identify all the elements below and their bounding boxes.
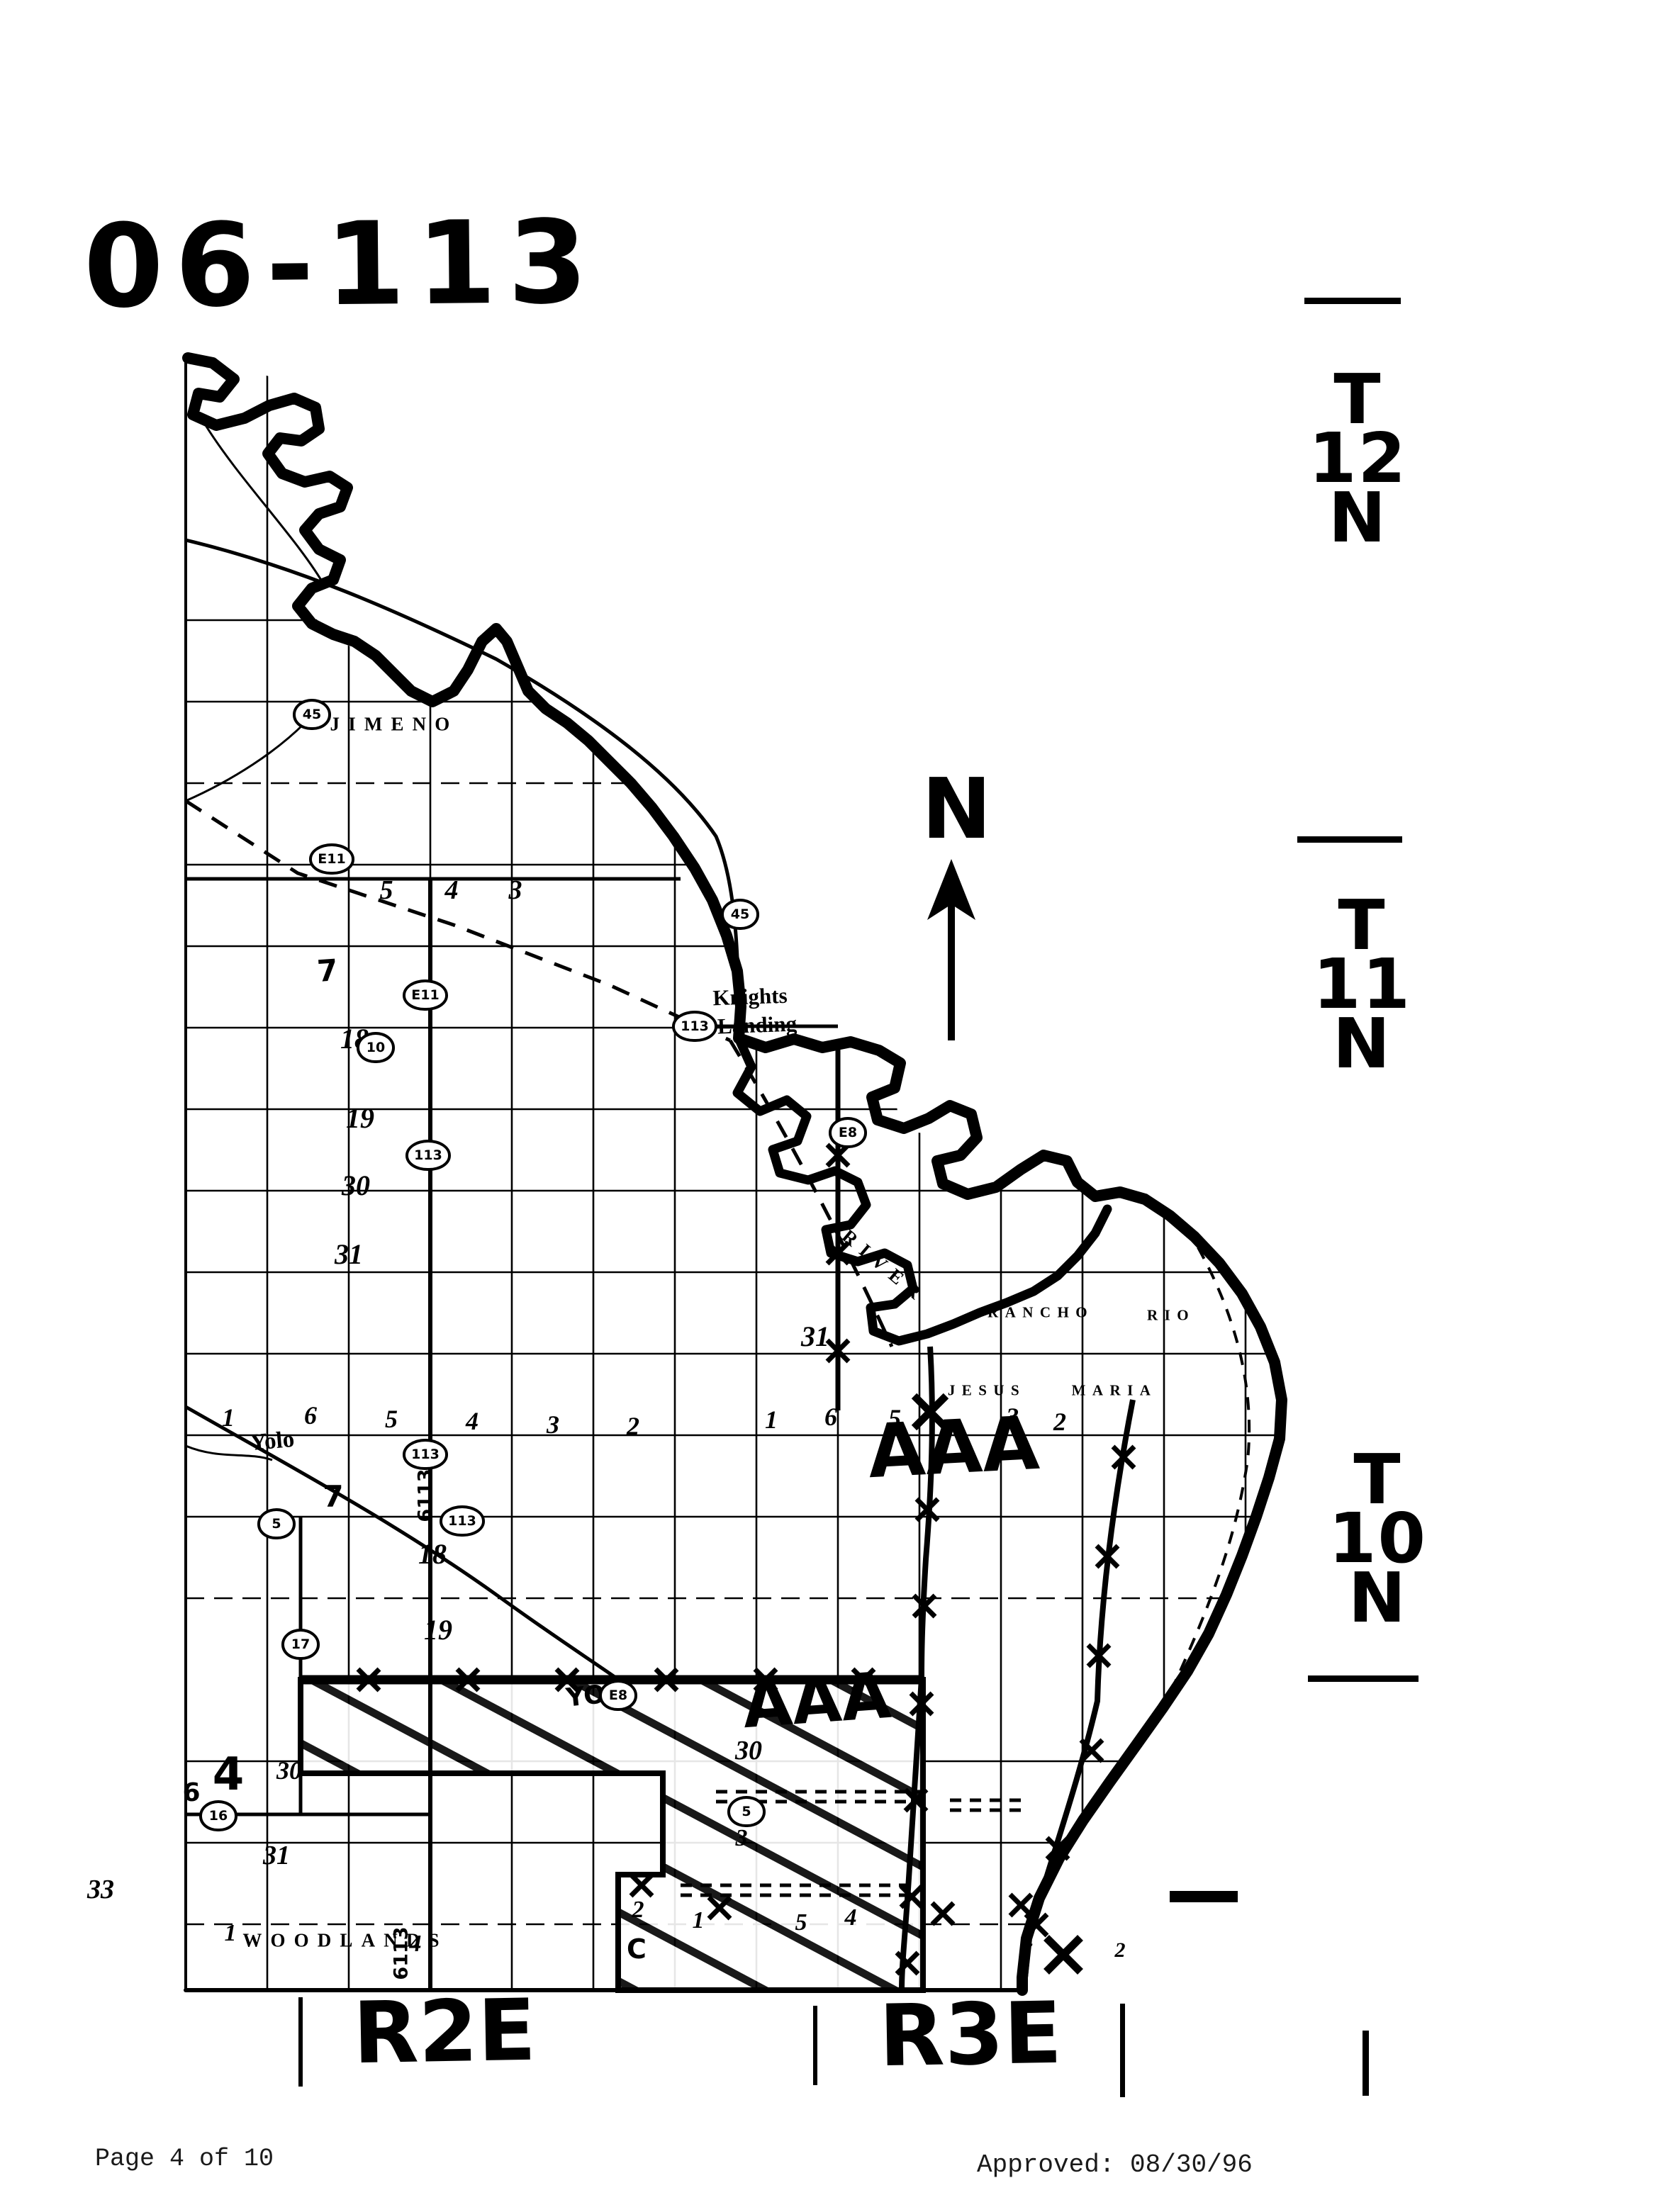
handwritten-annotation: AAA <box>866 1406 1041 1488</box>
section-number: 31 <box>263 1842 290 1869</box>
approved-footer: Approved: 08/30/96 <box>977 2150 1253 2179</box>
township-tick-bottom <box>1308 1675 1419 1682</box>
route-shield: 16 <box>199 1800 237 1831</box>
section-number: 33 <box>87 1876 114 1903</box>
place-name-label: MARIA <box>1072 1383 1158 1398</box>
section-number: 4 <box>466 1408 479 1434</box>
approved-date: 08/30/96 <box>1130 2150 1253 2179</box>
margin-dash-mark <box>1170 1891 1238 1902</box>
range-tick-left <box>298 1997 303 2087</box>
range-tick-right <box>1120 2004 1125 2097</box>
section-number: 3 <box>509 877 522 904</box>
section-number: 31 <box>335 1240 363 1269</box>
section-number: 1 <box>693 1909 705 1933</box>
place-name-label: RANCHO <box>987 1306 1094 1320</box>
section-number: 18 <box>418 1540 447 1568</box>
section-number: 4 <box>845 1906 857 1930</box>
section-number: 2 <box>632 1898 644 1922</box>
section-number: 6 <box>304 1403 317 1428</box>
section-number: 6 <box>824 1404 837 1430</box>
section-number: 1 <box>225 1921 237 1946</box>
compass-n-label: N <box>922 760 992 858</box>
place-name-label: Landing <box>717 1013 797 1038</box>
route-shield: 113 <box>672 1011 717 1042</box>
handwritten-annotation: 6113 <box>392 1926 411 1980</box>
section-number: 5 <box>795 1911 807 1935</box>
place-name-label: JESUS <box>948 1383 1026 1398</box>
approved-label: Approved: <box>977 2150 1114 2179</box>
township-label-t10n: T10N <box>1328 1450 1427 1627</box>
route-shield: 113 <box>440 1505 485 1537</box>
page-number-footer: Page 4 of 10 <box>95 2145 274 2173</box>
handwritten-annotation: 6 <box>182 1780 200 1806</box>
section-number: 30 <box>342 1172 370 1200</box>
place-name-label: Knights <box>712 984 788 1009</box>
township-label-t11n: T11N <box>1313 896 1411 1073</box>
route-shield: E8 <box>599 1680 637 1711</box>
handwritten-annotation: AAA <box>741 1664 893 1738</box>
route-shield: 5 <box>257 1508 296 1539</box>
route-shield: 5 <box>727 1796 766 1827</box>
handwritten-annotation: 4 <box>213 1752 245 1797</box>
section-number: 3 <box>547 1412 559 1437</box>
route-shield: E11 <box>403 979 448 1011</box>
route-shield: E11 <box>309 843 354 875</box>
map-number-title: 06-113 <box>83 196 599 334</box>
section-number: 1 <box>222 1405 235 1430</box>
route-shield: 17 <box>281 1629 320 1660</box>
handwritten-annotation: 6113 <box>416 1469 435 1522</box>
section-number: 19 <box>346 1104 374 1133</box>
handwritten-annotation: 7 <box>316 955 339 987</box>
section-number: 3 <box>736 1826 748 1851</box>
route-shield: E8 <box>829 1117 867 1148</box>
route-shield: 113 <box>403 1439 448 1470</box>
handwritten-annotation: 7 <box>323 1482 343 1512</box>
section-number: 2 <box>627 1413 639 1439</box>
route-shield: 45 <box>721 899 759 930</box>
place-name-label: Yolo <box>250 1428 296 1455</box>
township-tick-top <box>1304 298 1401 304</box>
section-number: 2 <box>1053 1409 1066 1435</box>
route-shield: 10 <box>357 1032 395 1063</box>
range-tick-middle <box>813 2006 817 2085</box>
section-number: 2 <box>1115 1940 1126 1961</box>
section-number: 19 <box>424 1616 452 1644</box>
section-number: 4 <box>445 877 459 904</box>
range-label-r3e: R3E <box>878 1984 1063 2086</box>
section-number: 5 <box>380 877 393 904</box>
margin-vertical-mark <box>1363 2031 1369 2096</box>
place-name-label: RIO <box>1147 1308 1195 1323</box>
range-label-r2e: R2E <box>352 1982 537 2083</box>
scanned-map-page: 06-113 N T12N T11N T10N R2E R3E Page 4 o… <box>0 0 1673 2212</box>
township-tick-middle <box>1297 836 1402 843</box>
route-shield: 45 <box>293 699 331 730</box>
place-name-label: JIMENO <box>330 715 459 734</box>
section-number: 31 <box>801 1323 829 1351</box>
section-number: 5 <box>385 1406 398 1432</box>
north-arrow <box>927 859 975 1040</box>
township-label-t12n: T12N <box>1309 370 1407 547</box>
section-number: 4 <box>1022 1930 1034 1954</box>
route-shield: 113 <box>405 1140 451 1171</box>
section-number: 30 <box>276 1758 302 1783</box>
handwritten-annotation: C <box>627 1936 647 1963</box>
section-number: 1 <box>765 1407 778 1432</box>
